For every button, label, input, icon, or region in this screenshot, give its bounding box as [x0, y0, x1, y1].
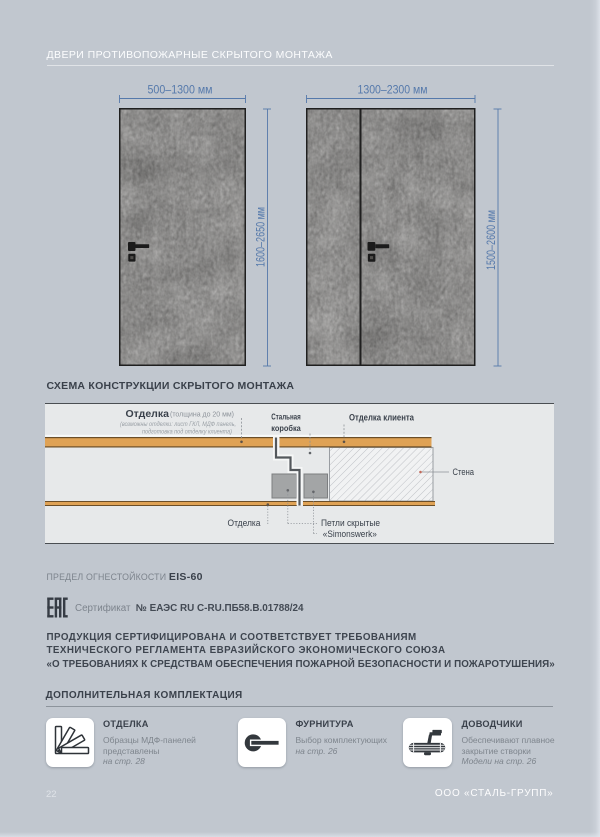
svg-text:Петли скрытые: Петли скрытые: [321, 518, 380, 528]
svg-text:1600–2650 мм: 1600–2650 мм: [256, 207, 268, 267]
svg-text:Отделка: Отделка: [126, 408, 170, 420]
svg-text:коробка: коробка: [271, 423, 301, 433]
svg-text:«Simonswerk»: «Simonswerk»: [323, 529, 377, 539]
svg-text:500–1300 мм: 500–1300 мм: [148, 85, 213, 97]
svg-text:Стена: Стена: [453, 467, 475, 478]
svg-text:подготовка под отделку клиента: подготовка под отделку клиента): [142, 427, 232, 435]
svg-text:Отделка клиента: Отделка клиента: [349, 412, 414, 422]
svg-text:Стальная: Стальная: [271, 411, 301, 421]
svg-text:1500–2600 мм: 1500–2600 мм: [486, 210, 498, 270]
svg-text:(толщина до 20 мм): (толщина до 20 мм): [170, 409, 234, 418]
svg-text:1300–2300 мм: 1300–2300 мм: [358, 85, 428, 97]
svg-text:Отделка: Отделка: [228, 518, 261, 528]
svg-text:(возможны отделки: лист ГКЛ, М: (возможны отделки: лист ГКЛ, МДФ панель,: [120, 420, 236, 428]
